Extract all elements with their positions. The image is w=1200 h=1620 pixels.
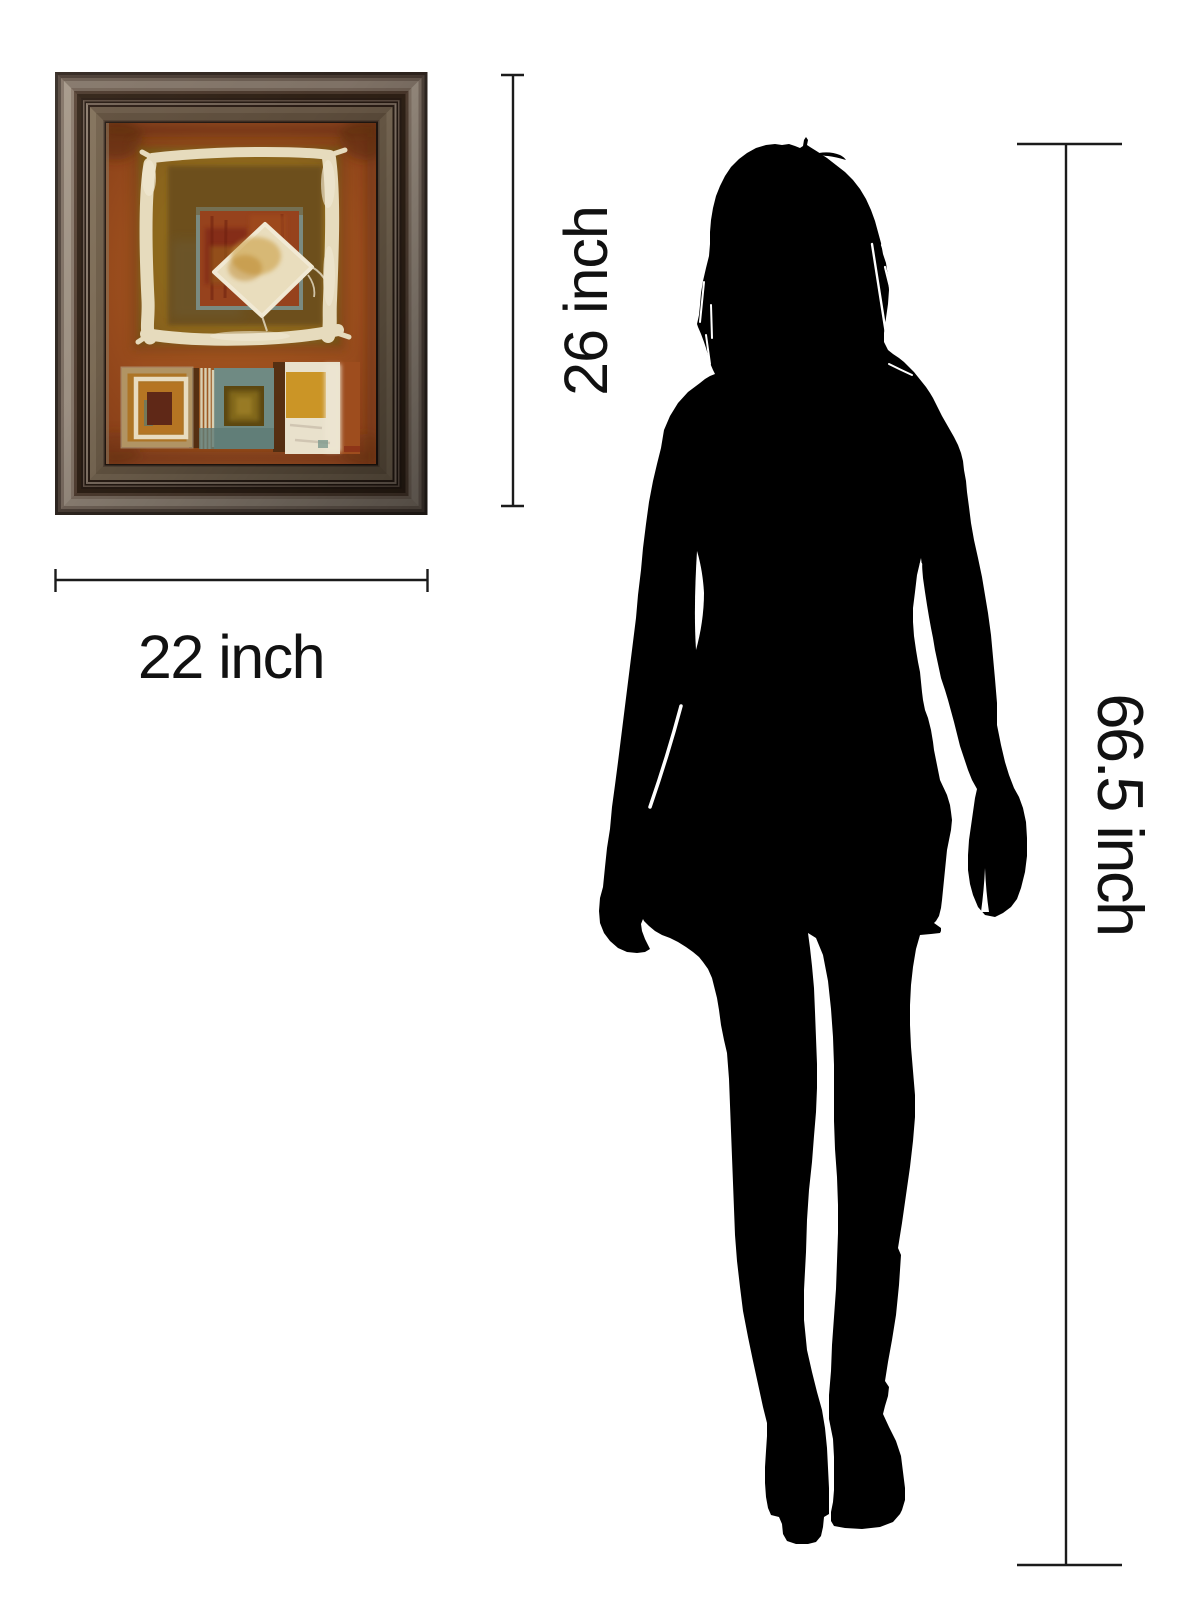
svg-text:26 inch: 26 inch bbox=[552, 206, 620, 396]
svg-text:66.5 inch: 66.5 inch bbox=[1084, 693, 1157, 934]
svg-text:22 inch: 22 inch bbox=[138, 623, 324, 691]
